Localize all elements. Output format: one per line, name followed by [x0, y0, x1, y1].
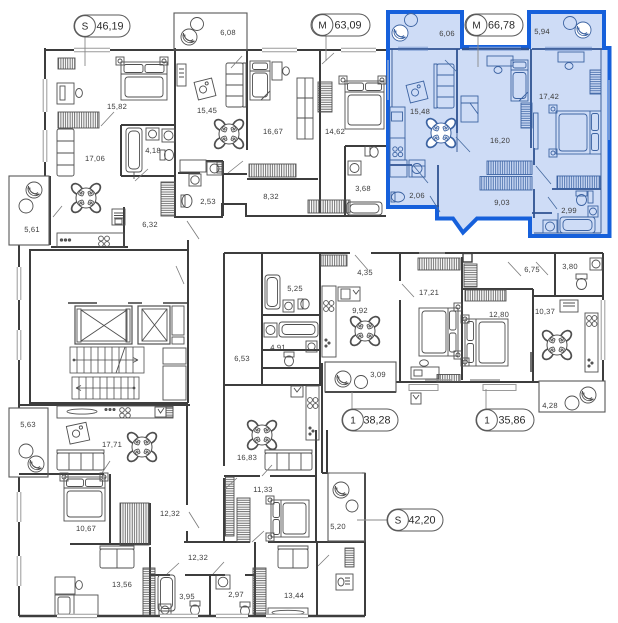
svg-text:3,80: 3,80	[562, 262, 578, 271]
svg-text:2,97: 2,97	[228, 590, 244, 599]
svg-text:11,33: 11,33	[253, 485, 272, 494]
svg-text:4,91: 4,91	[270, 343, 286, 352]
svg-text:4,18: 4,18	[145, 146, 161, 155]
svg-text:5,63: 5,63	[20, 420, 36, 429]
svg-text:16,20: 16,20	[490, 136, 510, 145]
svg-text:M: M	[472, 21, 480, 32]
svg-text:13,56: 13,56	[112, 580, 132, 589]
svg-text:16,67: 16,67	[263, 127, 283, 136]
svg-text:5,25: 5,25	[287, 284, 303, 293]
svg-text:15,82: 15,82	[107, 102, 127, 111]
svg-text:35,86: 35,86	[498, 415, 525, 427]
svg-text:2,53: 2,53	[200, 197, 216, 206]
svg-text:17,06: 17,06	[85, 154, 105, 163]
svg-text:46,19: 46,19	[96, 21, 123, 33]
svg-text:9,03: 9,03	[494, 198, 510, 207]
svg-text:10,37: 10,37	[535, 307, 555, 316]
svg-text:3,95: 3,95	[179, 592, 195, 601]
svg-text:9,92: 9,92	[352, 306, 368, 315]
svg-text:6,08: 6,08	[220, 28, 236, 37]
svg-text:1: 1	[350, 416, 356, 427]
svg-text:3,68: 3,68	[355, 184, 371, 193]
svg-text:M: M	[318, 21, 326, 32]
svg-text:2,06: 2,06	[409, 191, 425, 200]
svg-text:12,32: 12,32	[188, 553, 208, 562]
svg-text:14,62: 14,62	[325, 127, 345, 136]
svg-text:4,28: 4,28	[542, 401, 558, 410]
svg-text:12,32: 12,32	[160, 509, 180, 518]
svg-text:66,78: 66,78	[488, 20, 515, 32]
svg-text:8,32: 8,32	[263, 192, 279, 201]
svg-text:5,20: 5,20	[330, 522, 346, 531]
svg-text:5,61: 5,61	[24, 225, 40, 234]
svg-text:S: S	[82, 22, 89, 33]
svg-text:38,28: 38,28	[363, 415, 390, 427]
svg-text:17,21: 17,21	[419, 288, 439, 297]
svg-text:4,35: 4,35	[357, 268, 373, 277]
svg-text:13,44: 13,44	[284, 591, 304, 600]
svg-text:12,80: 12,80	[489, 310, 509, 319]
svg-text:2,99: 2,99	[561, 206, 577, 215]
svg-text:6,75: 6,75	[524, 265, 540, 274]
svg-text:1: 1	[484, 416, 490, 427]
svg-text:63,09: 63,09	[334, 20, 361, 32]
svg-text:6,06: 6,06	[439, 29, 455, 38]
svg-text:16,83: 16,83	[237, 453, 257, 462]
svg-text:42,20: 42,20	[408, 515, 435, 527]
svg-text:15,48: 15,48	[410, 107, 430, 116]
svg-text:17,42: 17,42	[539, 92, 559, 101]
svg-text:6,32: 6,32	[142, 220, 158, 229]
svg-text:3,09: 3,09	[370, 370, 386, 379]
svg-text:S: S	[395, 516, 402, 527]
svg-text:15,45: 15,45	[197, 106, 217, 115]
svg-text:10,67: 10,67	[76, 524, 96, 533]
svg-text:6,53: 6,53	[234, 354, 250, 363]
svg-text:17,71: 17,71	[102, 440, 122, 449]
svg-text:5,94: 5,94	[534, 27, 550, 36]
